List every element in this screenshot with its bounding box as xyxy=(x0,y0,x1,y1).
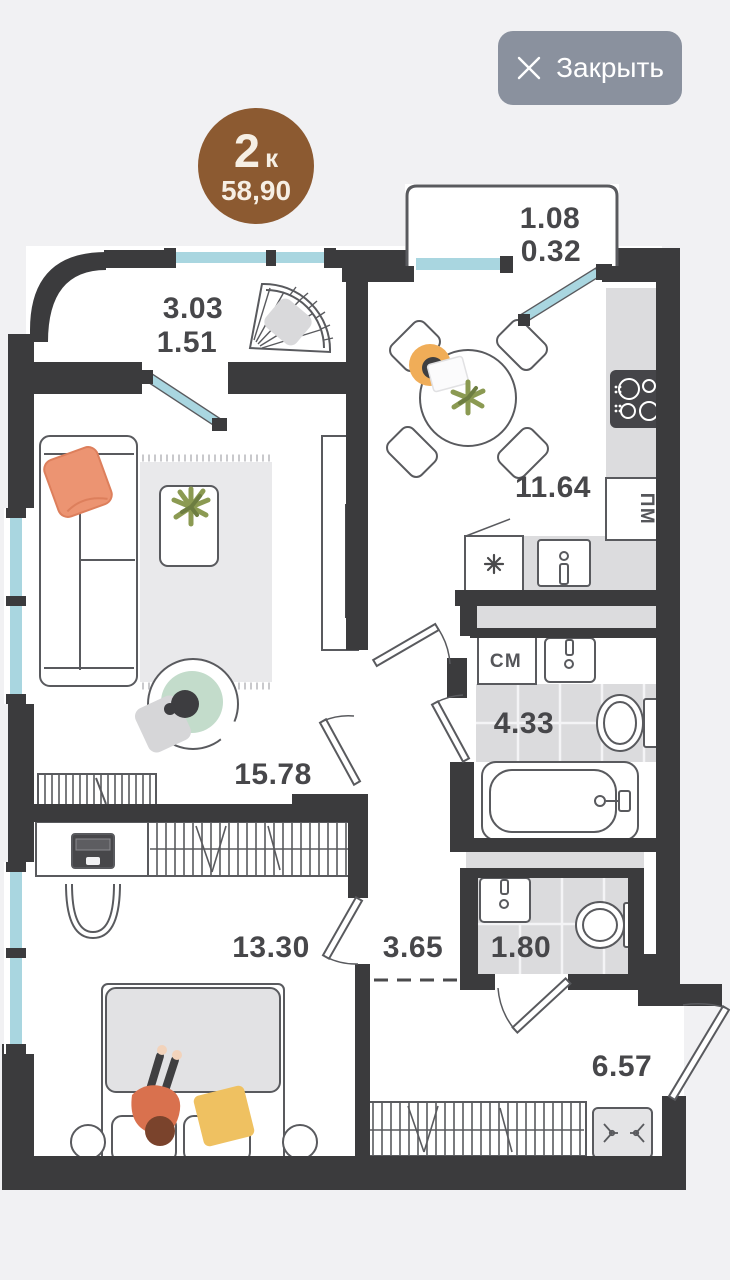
balcony-left-label-1: 3.03 xyxy=(163,292,223,325)
living-room-area-label: 15.78 xyxy=(234,758,312,791)
wc-area-label: 1.80 xyxy=(491,931,551,964)
close-button[interactable]: Закрыть xyxy=(498,31,682,105)
washing-machine-label: СМ xyxy=(490,651,522,672)
floor-plan-screen: 3.03 1.51 1.08 0.32 11.64 15.78 4.33 13.… xyxy=(0,0,730,1280)
close-button-label: Закрыть xyxy=(556,52,664,84)
hallway-area-label: 3.65 xyxy=(383,931,443,964)
badge-rooms-suffix: к xyxy=(265,145,278,171)
stove-icon xyxy=(610,370,662,428)
close-icon xyxy=(516,55,542,81)
kitchen-sink-icon xyxy=(538,540,590,586)
balcony-left-label-2: 1.51 xyxy=(157,326,217,359)
kitchen-area-label: 11.64 xyxy=(515,471,591,504)
person-head xyxy=(171,690,199,718)
bathtub-icon xyxy=(482,762,638,840)
badge-rooms-count: 2 xyxy=(234,127,260,174)
balcony-top-outline xyxy=(407,186,617,266)
bedroom-area-label: 13.30 xyxy=(232,931,310,964)
balcony-top-label-2: 0.32 xyxy=(521,235,581,268)
corridor-area-label: 6.57 xyxy=(592,1050,652,1083)
wc-sink-icon xyxy=(480,878,530,922)
balcony-top-label-1: 1.08 xyxy=(520,202,580,235)
corridor-furniture xyxy=(368,1102,652,1158)
bathroom-area-label: 4.33 xyxy=(494,707,554,740)
badge-area-value: 58,90 xyxy=(221,177,291,205)
floor-plan: 3.03 1.51 1.08 0.32 11.64 15.78 4.33 13.… xyxy=(0,0,730,1280)
toilet-icon xyxy=(597,695,658,751)
bath-sink-icon xyxy=(545,638,595,682)
dishwasher-label: ПМ xyxy=(636,493,657,525)
shoe-cabinet-icon xyxy=(593,1108,652,1158)
apartment-badge: 2 к 58,90 xyxy=(198,108,314,224)
